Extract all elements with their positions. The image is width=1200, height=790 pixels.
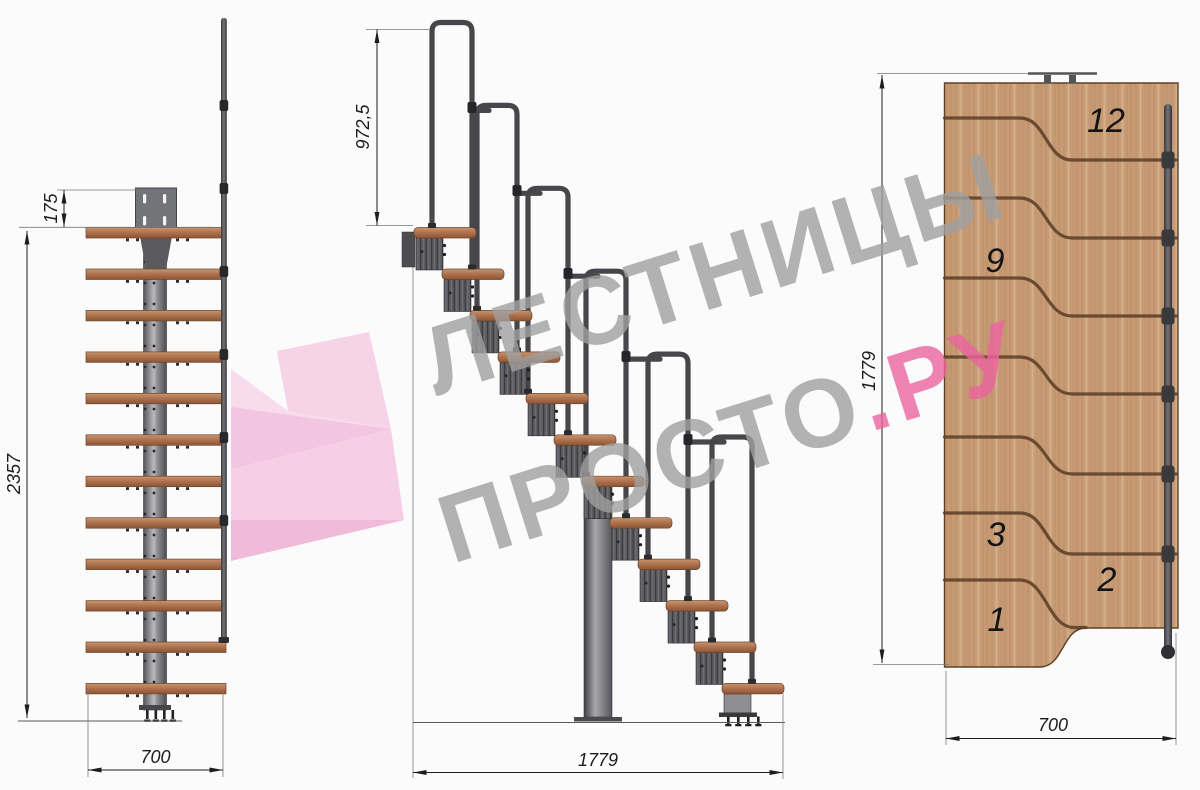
dim-1779-side-label: 1779 bbox=[578, 750, 618, 770]
mounting-plate bbox=[136, 188, 177, 231]
step-number-3: 3 bbox=[987, 516, 1006, 554]
step-number-12: 12 bbox=[1087, 102, 1125, 140]
step-number-1: 1 bbox=[988, 601, 1007, 639]
dim-700-front-label: 700 bbox=[140, 747, 170, 767]
bottom-step-module bbox=[719, 683, 784, 726]
stairs-technical-drawing: 175 2357 700 bbox=[0, 0, 1200, 790]
plan-top-plate bbox=[877, 74, 1097, 84]
front-view: 175 2357 700 bbox=[4, 18, 229, 777]
step-number-2: 2 bbox=[1097, 561, 1117, 599]
dim-700-plan-label: 700 bbox=[1038, 715, 1068, 735]
handrail-post-front bbox=[219, 18, 230, 643]
anchor-feet-front bbox=[144, 710, 176, 722]
step-number-9: 9 bbox=[986, 242, 1005, 280]
dim-2357-label: 2357 bbox=[4, 453, 24, 495]
watermark: ЛЕСТНИЦЫ ПРОСТО.РУ bbox=[410, 130, 1035, 584]
drawing-canvas: 175 2357 700 bbox=[0, 0, 1200, 790]
dim-972-label: 972,5 bbox=[353, 103, 373, 149]
wall-bracket bbox=[402, 232, 415, 267]
brand-logo bbox=[231, 332, 404, 561]
dim-175-label: 175 bbox=[41, 193, 61, 224]
column-base-side bbox=[574, 717, 622, 722]
